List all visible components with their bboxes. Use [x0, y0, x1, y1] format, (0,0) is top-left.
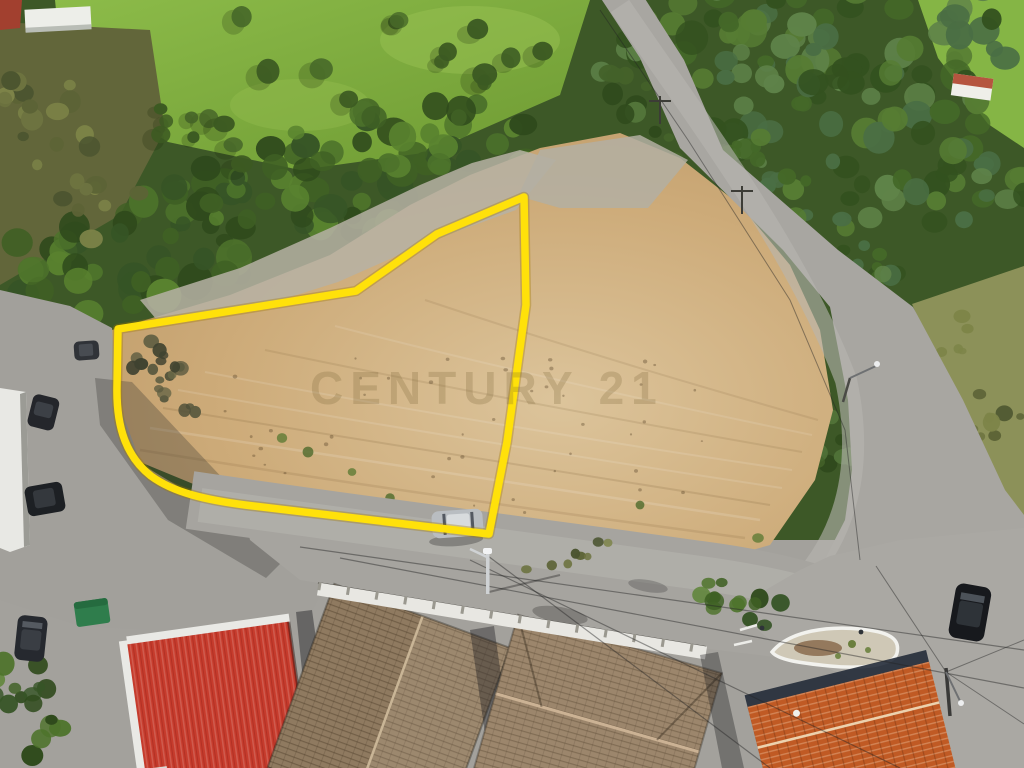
watermark: CENTURY 21 [310, 362, 664, 414]
car-dark-small [73, 340, 99, 361]
car-dark-parked-3 [14, 615, 49, 663]
pedestrian [859, 630, 864, 635]
aerial-photo: CENTURY 21 [0, 0, 1024, 768]
building-white-left-edge [0, 388, 30, 552]
pedestrian [760, 626, 765, 631]
dumpster [73, 598, 110, 627]
